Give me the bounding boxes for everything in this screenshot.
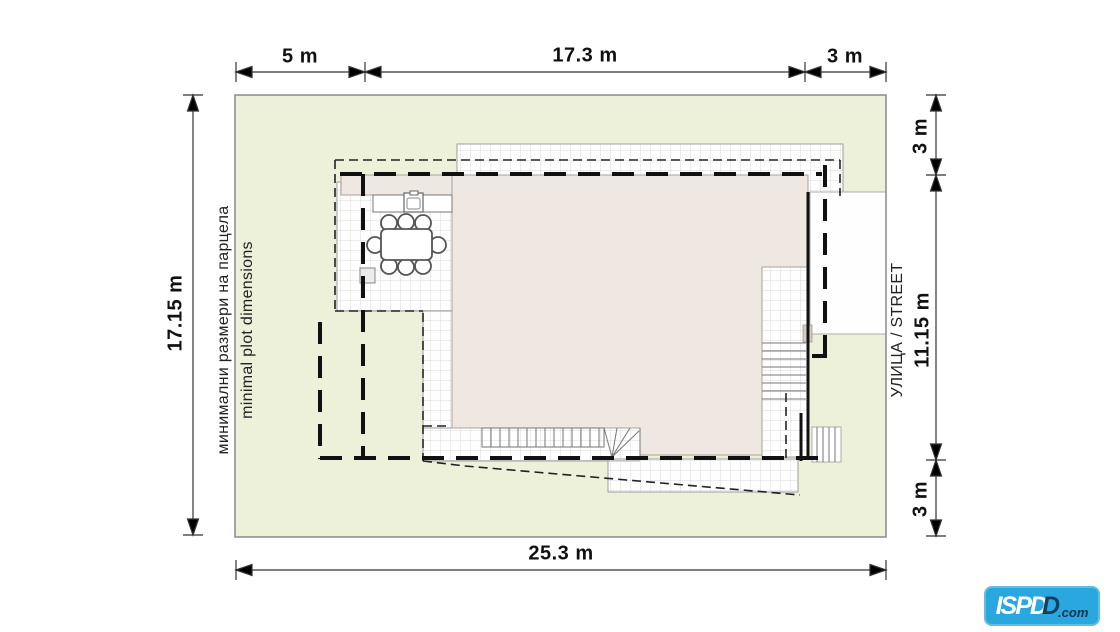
dining-table xyxy=(381,229,432,260)
caption-plot-bulgarian: минимални размери на парцела xyxy=(215,206,233,455)
dim-label-right-bottom: 3 m xyxy=(910,481,933,517)
dim-label-right-middle: 11.15 m xyxy=(912,292,935,368)
dim-label-top-center: 17.3 m xyxy=(552,45,617,68)
driveway xyxy=(810,192,886,334)
site-plan: 5 m 17.3 m 3 m 25.3 m 17.15 m 3 m 11.15 … xyxy=(0,0,1120,632)
logo-white-text: ISPD xyxy=(996,594,1046,619)
dim-label-top-left: 5 m xyxy=(282,46,318,69)
logo-dark-text: D xyxy=(1042,594,1058,619)
logo-suffix: .com xyxy=(1058,606,1088,619)
dim-label-left: 17.15 m xyxy=(165,275,188,352)
dim-label-right-top: 3 m xyxy=(910,118,933,154)
dim-label-bottom: 25.3 m xyxy=(528,543,593,566)
logo-ispdd[interactable]: ISPD D .com xyxy=(984,586,1100,626)
caption-plot-english: minimal plot dimensions xyxy=(239,241,257,419)
caption-street: УЛИЦА / STREET xyxy=(889,263,907,398)
dim-label-top-right: 3 m xyxy=(827,46,863,69)
